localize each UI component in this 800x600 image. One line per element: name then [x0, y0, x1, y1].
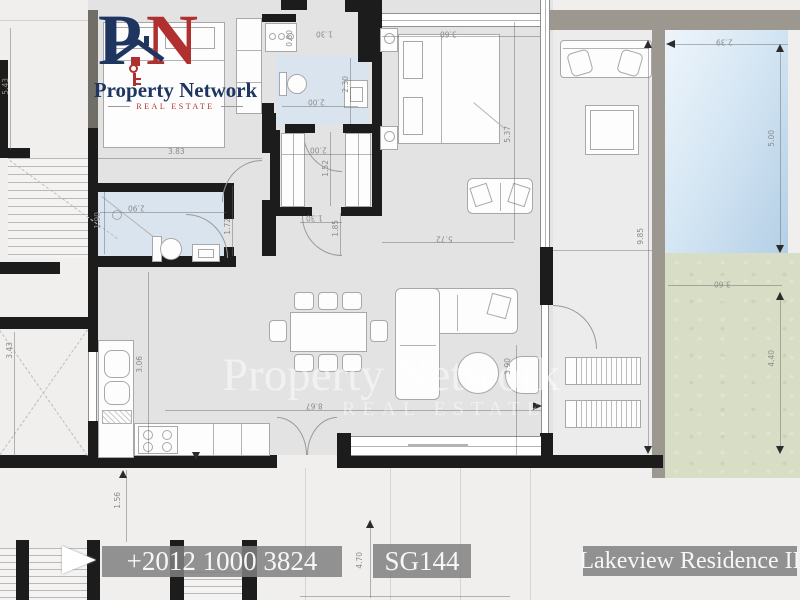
dimension-label: 9.85	[637, 228, 645, 245]
wall	[285, 124, 315, 133]
wall	[341, 207, 382, 216]
balcony-table	[585, 105, 639, 155]
doormat-line	[408, 444, 468, 446]
dimension-line	[514, 22, 515, 240]
staircase	[0, 548, 16, 600]
closet-line	[293, 134, 294, 206]
bedroom-window-top	[382, 13, 540, 27]
projection-line	[460, 468, 461, 600]
dimension-line	[148, 272, 149, 454]
dimension-line	[104, 192, 105, 254]
living-window	[351, 436, 541, 456]
sofa-seam	[500, 183, 501, 211]
wall	[88, 183, 234, 192]
chimney-icon	[144, 36, 149, 46]
dimension-label: 5.72	[436, 235, 453, 243]
balcony-bench	[560, 40, 652, 78]
kitchen-window	[88, 352, 97, 421]
dimension-label: 2.00	[308, 98, 325, 106]
burner-icon	[162, 442, 172, 452]
dimension-line	[300, 596, 510, 597]
dimension-label: 5.00	[768, 130, 776, 147]
wall	[0, 455, 277, 468]
wall	[652, 10, 665, 478]
dimension-label: 8.67	[306, 402, 323, 410]
dimension-label: 1.90	[94, 212, 102, 229]
unit-code-label: SG144	[373, 544, 471, 578]
dining-chair	[318, 292, 338, 310]
terrace-divider-line	[553, 250, 652, 251]
dimension-label: 4.70	[356, 552, 364, 569]
logo-letter-n: N	[146, 4, 198, 76]
table-inner-line	[590, 110, 634, 150]
arrowhead-icon	[644, 446, 652, 458]
dimension-label: 5.43	[2, 78, 10, 95]
wall	[16, 540, 29, 600]
wall	[345, 0, 372, 12]
dimension-label: 1.52	[322, 160, 330, 177]
burner-icon	[162, 430, 172, 440]
tagline-rule	[221, 106, 243, 107]
dining-table	[290, 312, 367, 352]
dimension-line	[126, 470, 127, 542]
pillow	[403, 41, 423, 79]
wall	[270, 130, 280, 213]
lounger-headrest	[565, 400, 577, 428]
dimension-label: 1.30	[306, 214, 323, 222]
projection-line	[390, 468, 391, 600]
arrowhead-icon	[666, 40, 675, 48]
wall	[550, 10, 800, 30]
phone-label: +2012 1000 3824	[102, 546, 342, 577]
dimension-line	[232, 186, 233, 256]
bedroom-sofa	[467, 178, 533, 214]
bed	[398, 34, 500, 144]
dimension-label: 1.56	[114, 492, 122, 509]
dimension-line	[10, 28, 11, 150]
tagline-rule	[108, 106, 130, 107]
dimension-line	[382, 36, 540, 37]
dimension-label: 5.37	[504, 126, 512, 143]
wall	[281, 0, 307, 10]
wall	[343, 124, 372, 133]
closet-line	[358, 134, 359, 206]
sink-basin	[350, 87, 363, 102]
dimension-line	[370, 520, 371, 598]
cushion	[616, 48, 644, 77]
dimension-label: 2.39	[716, 38, 733, 46]
projection-line	[530, 468, 531, 600]
stove	[138, 426, 178, 454]
projection-line	[305, 468, 306, 600]
dining-chair	[370, 320, 388, 342]
dimension-line	[330, 132, 331, 206]
toilet	[287, 74, 307, 94]
dimension-label: 1.30	[316, 30, 333, 38]
bedroom-window-right	[540, 0, 550, 247]
wall	[0, 148, 30, 158]
key-ring-icon	[129, 64, 138, 73]
dimension-label: 1.72	[224, 218, 232, 235]
sofa-seam	[400, 345, 436, 346]
wall	[88, 421, 98, 458]
lamp-icon	[384, 33, 395, 44]
closet	[281, 133, 305, 207]
wall	[88, 268, 98, 352]
lounger-headrest	[565, 357, 577, 385]
wall	[0, 60, 8, 152]
dimension-line	[780, 46, 781, 251]
cushion	[566, 48, 594, 77]
arrowhead-icon	[192, 452, 200, 464]
dimension-line	[100, 212, 226, 213]
pillow	[403, 97, 423, 135]
watermark-tagline: REAL ESTATE	[342, 398, 546, 421]
dimension-label: 3.43	[6, 342, 14, 359]
sun-lounger	[565, 357, 641, 385]
sink-basin	[198, 249, 214, 258]
toilet-tank	[279, 72, 287, 96]
counter-seam	[213, 424, 214, 455]
dining-chair	[269, 320, 287, 342]
dining-chair	[294, 292, 314, 310]
blanket-fold	[473, 102, 504, 128]
logo-name: Property Network	[78, 78, 273, 103]
arrowhead-icon	[366, 516, 374, 528]
window-glass-line	[382, 20, 540, 21]
dimension-line	[282, 154, 372, 155]
closet	[345, 133, 371, 207]
arrowhead-icon	[644, 36, 652, 48]
kitchen-sink	[104, 350, 130, 378]
pillow	[507, 183, 530, 208]
arrowhead-icon	[776, 40, 784, 52]
dimension-label: 3.60	[440, 30, 457, 38]
wall	[88, 128, 98, 268]
wall	[0, 262, 60, 274]
watermark-text: Property Network	[222, 348, 560, 402]
dimension-label: 2.00	[310, 146, 327, 154]
stair-direction-arrow-icon	[62, 546, 96, 574]
window-glass-line	[351, 446, 541, 447]
project-name-label: Lakeview Residence II	[583, 546, 797, 576]
dimension-line	[98, 158, 262, 159]
dimension-label: 4.40	[768, 350, 776, 367]
wall	[358, 12, 372, 62]
wall	[0, 317, 97, 329]
dimension-line	[648, 42, 649, 452]
counter-seam	[241, 424, 242, 455]
floor-plan-canvas: 5.43 3.83 1.90 2.90 1.72 0.80 1.30 2.30 …	[0, 0, 800, 600]
sink	[192, 244, 220, 262]
dimension-label: 3.83	[168, 148, 185, 156]
bench-back-line	[563, 48, 649, 49]
arrowhead-icon	[776, 446, 784, 458]
kitchen-sink	[104, 381, 130, 405]
dimension-line	[350, 58, 351, 124]
dimension-line	[780, 292, 781, 452]
knob-icon	[278, 33, 285, 40]
toilet	[160, 238, 182, 260]
sun-lounger	[565, 400, 641, 428]
blanket-line	[441, 35, 442, 143]
logo-tagline-row: REAL ESTATE	[78, 102, 273, 111]
pillow	[486, 293, 511, 319]
dimension-label: 2.30	[342, 76, 350, 93]
dimension-label: 3.60	[714, 280, 731, 288]
projection-line	[0, 20, 88, 21]
dimension-label: 1.85	[332, 220, 340, 237]
arrowhead-icon	[119, 466, 127, 478]
dimension-line	[340, 213, 341, 255]
wall	[540, 247, 553, 305]
lamp-icon	[384, 131, 395, 142]
property-network-logo: P N Property Network REAL ESTATE	[78, 0, 278, 130]
wall	[337, 455, 663, 468]
window-glass-line	[545, 0, 546, 247]
logo-tagline: REAL ESTATE	[136, 102, 214, 111]
arrowhead-icon	[776, 288, 784, 300]
dimension-label: 3.06	[136, 356, 144, 373]
dimension-label: 0.80	[286, 30, 294, 47]
dimension-label: 2.90	[128, 204, 145, 212]
arrowhead-icon	[776, 245, 784, 257]
dining-chair	[342, 292, 362, 310]
dimension-line	[14, 332, 15, 456]
sofa-seam	[457, 295, 458, 331]
pillow	[469, 183, 492, 208]
dish-rack	[102, 410, 132, 424]
